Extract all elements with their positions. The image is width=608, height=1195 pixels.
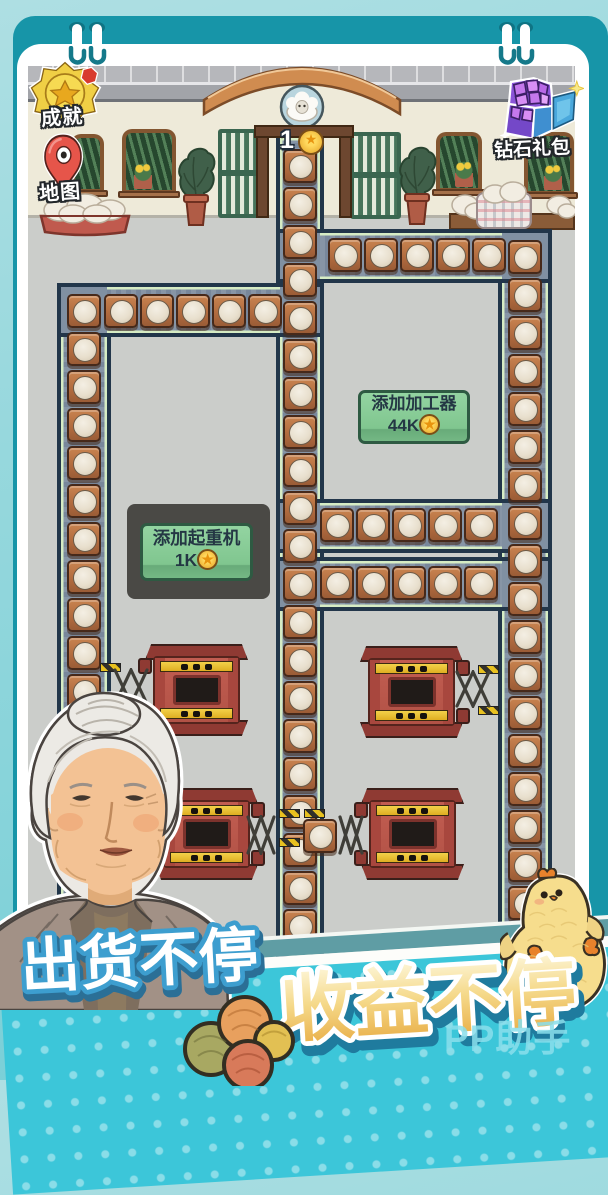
svg-text:出货不停: 出货不停 (19, 921, 260, 1000)
